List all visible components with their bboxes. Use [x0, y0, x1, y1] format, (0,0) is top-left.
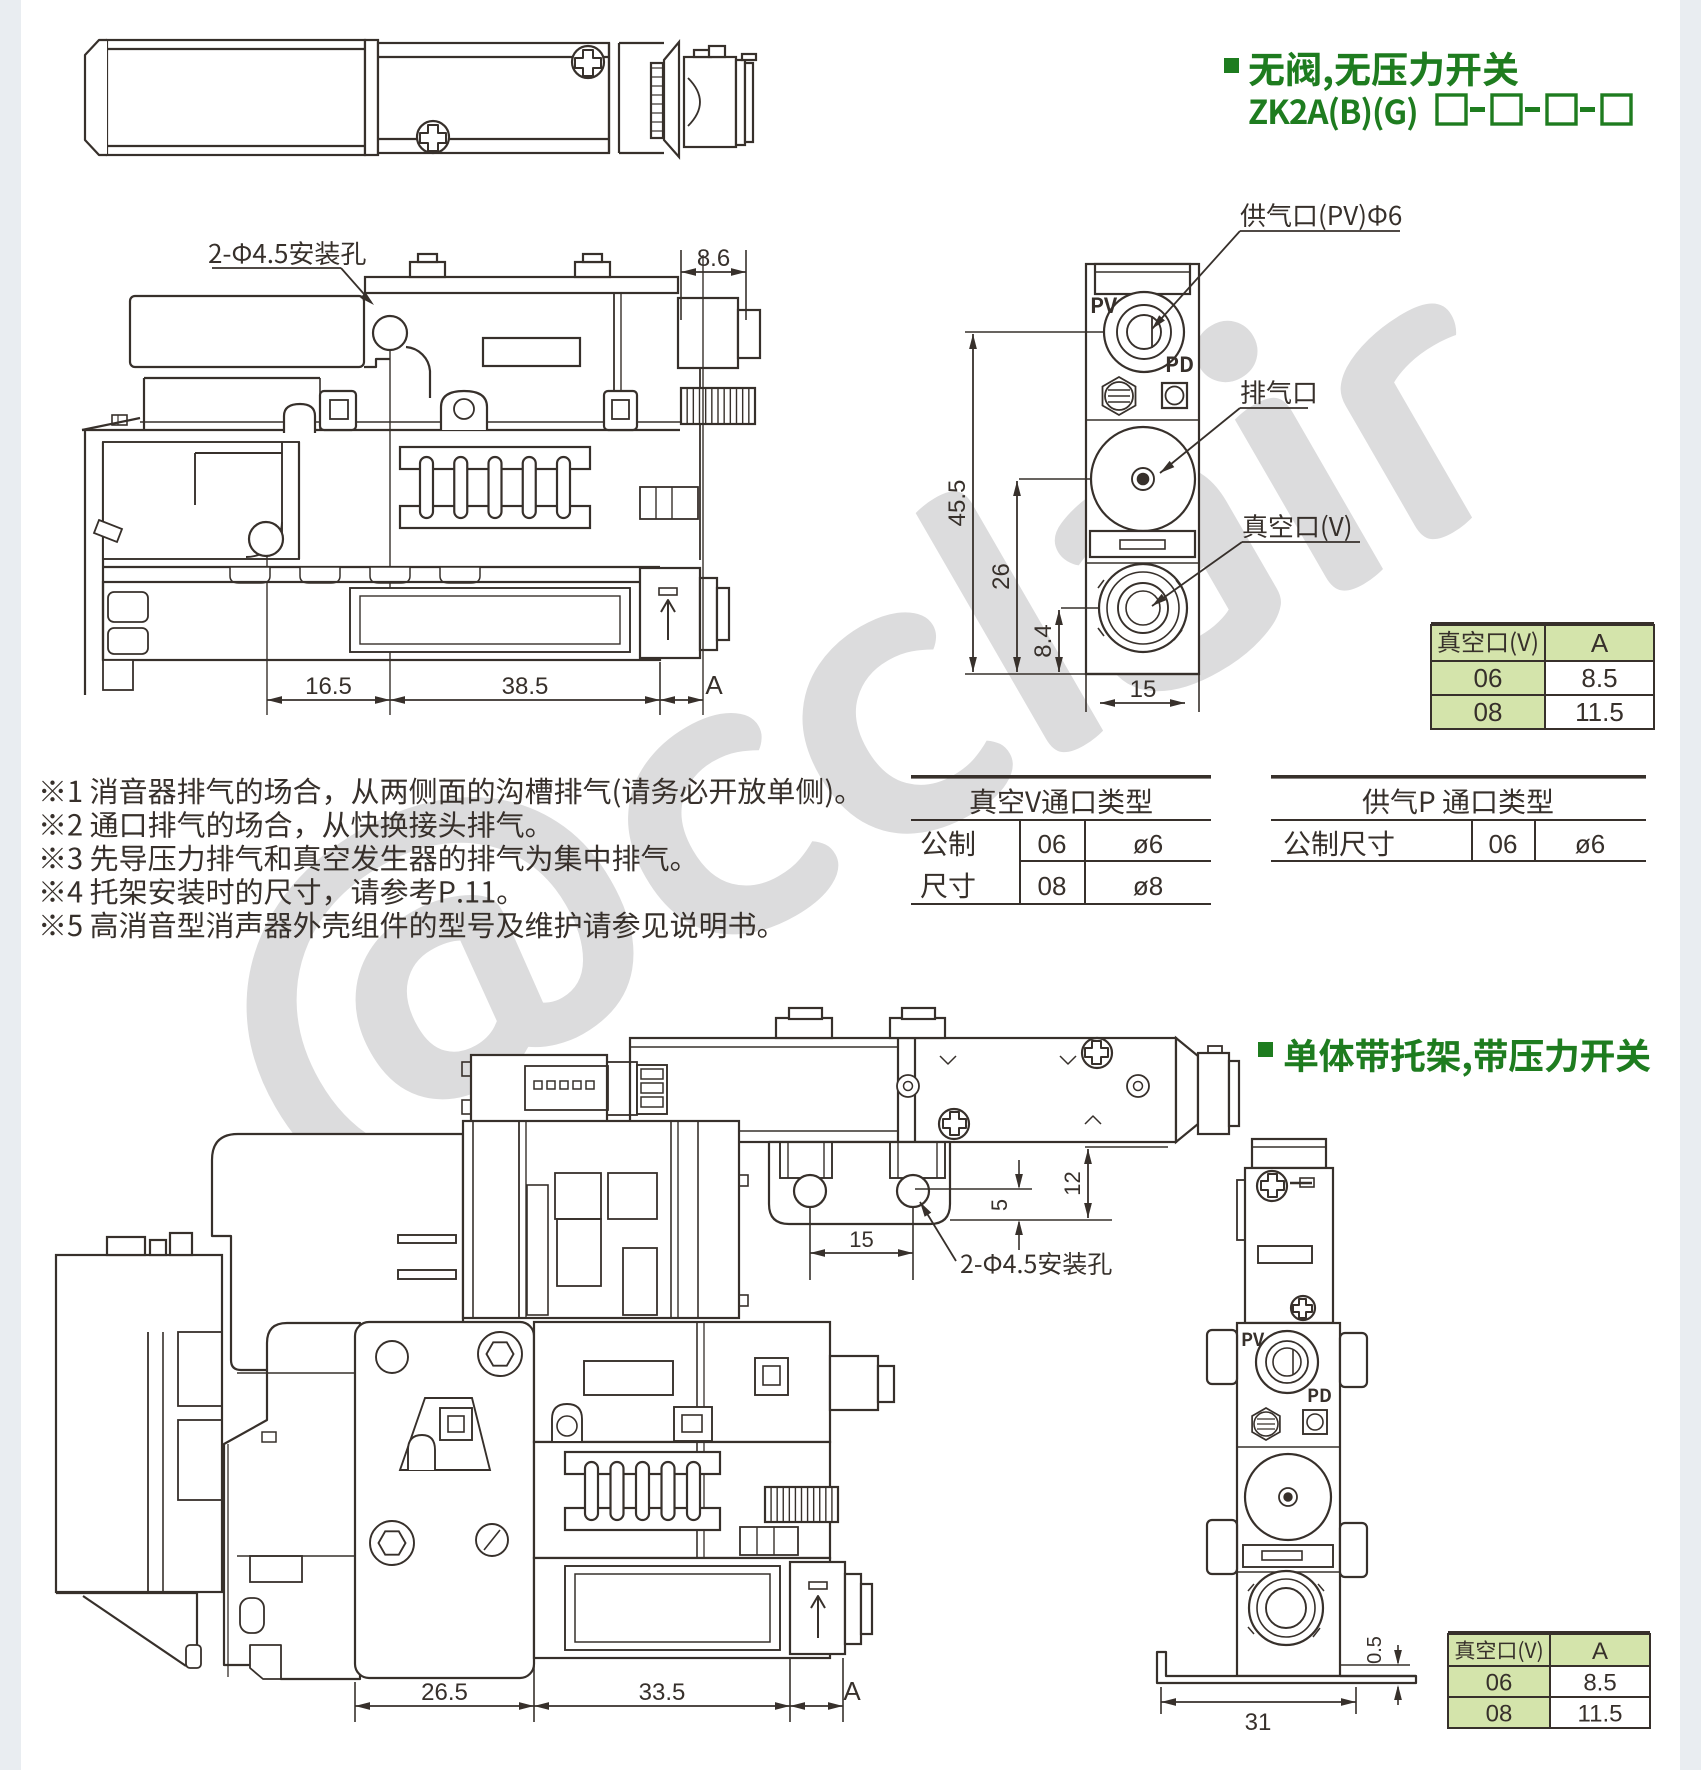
svg-text:38.5: 38.5: [502, 673, 549, 700]
svg-text:11.5: 11.5: [1578, 1701, 1623, 1728]
svg-text:33.5: 33.5: [639, 1679, 686, 1706]
svg-text:45.5: 45.5: [944, 480, 971, 527]
svg-text:A: A: [705, 670, 723, 700]
svg-text:11.5: 11.5: [1575, 697, 1624, 727]
svg-text:12: 12: [1060, 1171, 1085, 1195]
svg-text:A: A: [1592, 1638, 1608, 1665]
svg-text:A: A: [843, 1676, 861, 1706]
svg-text:08: 08: [1038, 871, 1067, 901]
svg-text:26: 26: [988, 563, 1015, 590]
svg-text:8.5: 8.5: [1581, 663, 1617, 693]
svg-text:ø6: ø6: [1575, 829, 1605, 859]
svg-text:26.5: 26.5: [421, 1679, 468, 1706]
svg-text:06: 06: [1489, 829, 1518, 859]
svg-text:15: 15: [1130, 676, 1157, 703]
svg-text:8.6: 8.6: [697, 245, 730, 272]
svg-text:0.5: 0.5: [1364, 1636, 1386, 1664]
svg-text:08: 08: [1486, 1701, 1513, 1728]
svg-text:06: 06: [1038, 829, 1067, 859]
svg-text:8.5: 8.5: [1583, 1670, 1616, 1697]
svg-text:08: 08: [1474, 697, 1503, 727]
svg-text:06: 06: [1474, 663, 1503, 693]
svg-text:06: 06: [1486, 1670, 1513, 1697]
svg-text:ø6: ø6: [1133, 829, 1163, 859]
svg-text:ø8: ø8: [1133, 871, 1163, 901]
svg-text:31: 31: [1245, 1709, 1272, 1736]
svg-text:8.4: 8.4: [1030, 624, 1057, 657]
svg-text:15: 15: [849, 1227, 873, 1252]
svg-text:5: 5: [987, 1199, 1012, 1211]
svg-text:A: A: [1591, 628, 1609, 658]
svg-text:16.5: 16.5: [305, 673, 352, 700]
